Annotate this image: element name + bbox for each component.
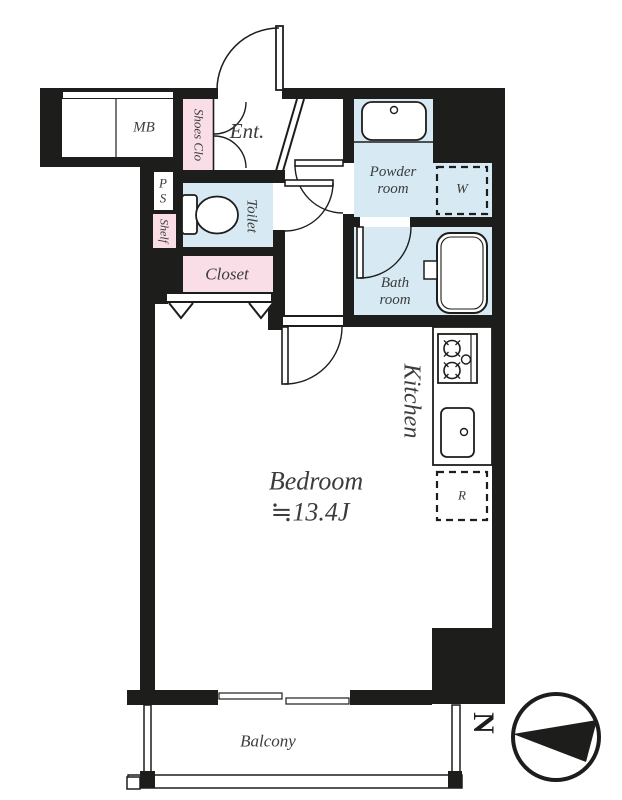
floor-plan: MB Shoes Clo Ent. P S Shelf Toilet Close… xyxy=(0,0,622,800)
entrance-step-lines xyxy=(276,99,304,171)
shoes-closet-label: Shoes Clo xyxy=(191,109,206,161)
wall-bottomright-block xyxy=(432,628,505,704)
powder-room-door xyxy=(295,160,343,213)
room-bath xyxy=(354,227,492,315)
stove xyxy=(438,334,477,383)
closet-bifold-marks xyxy=(169,303,273,318)
entrance-door xyxy=(217,26,283,90)
wall-shoes-left xyxy=(176,99,183,170)
wall-ent-bottom xyxy=(183,170,285,183)
wall-powder-bath-right xyxy=(410,217,505,227)
mb-top-strip xyxy=(63,92,173,98)
wall-powder-bath-left xyxy=(343,217,360,227)
kitchen-counter xyxy=(433,327,492,465)
closet-label: Closet xyxy=(205,264,248,283)
wall-hall-right-lower xyxy=(343,214,354,315)
washer-label: W xyxy=(456,182,468,198)
bedroom-size-label: ≒13.4J xyxy=(271,497,350,526)
wall-top-left xyxy=(176,88,218,99)
wall-bottom-right xyxy=(350,690,432,705)
compass-icon xyxy=(513,694,599,780)
wall-mid-horizontal xyxy=(343,315,505,327)
toilet-door xyxy=(285,180,333,231)
north-label: N xyxy=(466,712,500,734)
balcony-label: Balcony xyxy=(240,731,296,750)
pipe-space-label: P S xyxy=(159,176,167,205)
bedroom-label: Bedroom xyxy=(269,466,363,495)
shelf-label: Shelf xyxy=(157,219,170,243)
kitchen-sink xyxy=(441,408,474,457)
kitchen-label: Kitchen xyxy=(398,364,425,439)
powder-room-label: Powder room xyxy=(370,164,417,198)
mb-boxes xyxy=(62,99,173,157)
entrance-label: Ent. xyxy=(230,120,264,144)
wall-hall-right-upper xyxy=(343,99,354,163)
window-opening xyxy=(218,690,350,705)
mb-label: MB xyxy=(133,120,155,137)
wall-bottom-left xyxy=(127,690,218,705)
wall-right xyxy=(492,88,505,635)
toilet-label: Toilet xyxy=(243,199,260,233)
refrigerator-label: R xyxy=(458,489,466,504)
room-powder xyxy=(354,99,433,217)
bedroom-doorway xyxy=(283,315,343,327)
room-toilet xyxy=(183,183,273,247)
wall-toilet-closet xyxy=(183,247,273,256)
bedroom-door xyxy=(282,327,342,384)
closet-bifold-track xyxy=(165,292,273,303)
bath-room-label: Bath room xyxy=(379,275,410,309)
